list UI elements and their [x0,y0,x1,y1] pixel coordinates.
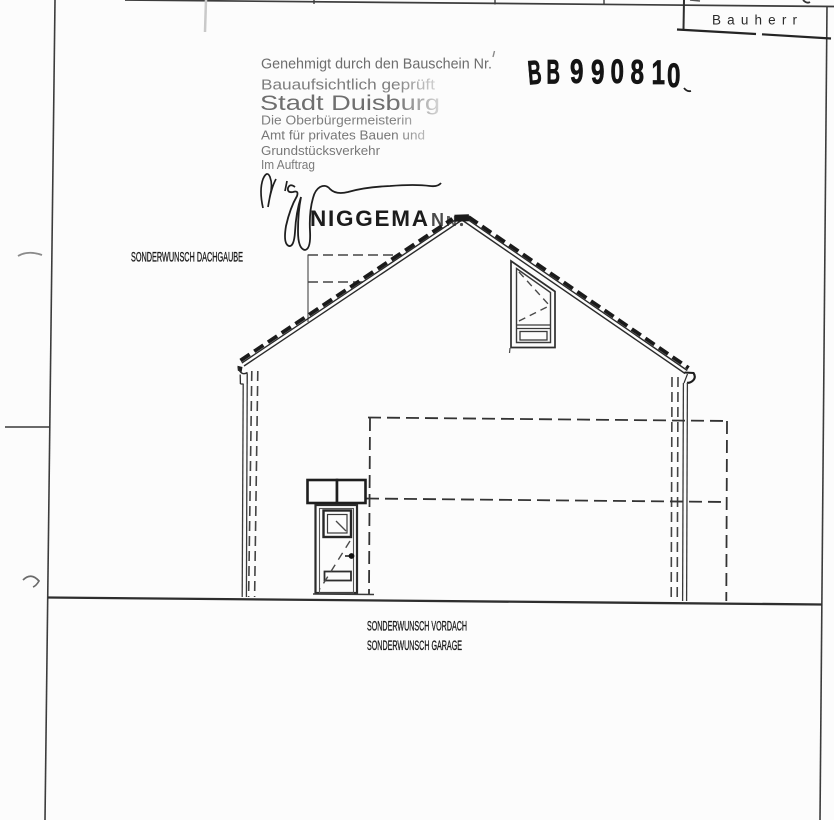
svg-text:SONDERWUNSCH DACHGAUBE: SONDERWUNSCH DACHGAUBE [131,250,243,265]
svg-text:Grundstücksverkehr: Grundstücksverkehr [261,143,381,158]
svg-text:0: 0 [611,53,625,91]
svg-text:SONDERWUNSCH GARAGE: SONDERWUNSCH GARAGE [367,638,462,653]
svg-text:B: B [547,54,561,92]
svg-text:Im Auftrag: Im Auftrag [261,158,315,172]
svg-text:9: 9 [591,54,605,92]
svg-text:Genehmigt durch den Bauschein: Genehmigt durch den Bauschein Nr. [261,56,492,73]
svg-text:B: B [526,54,543,93]
svg-text:1: 1 [652,54,666,92]
svg-text:0: 0 [667,57,681,95]
svg-text:SONDERWUNSCH VORDACH: SONDERWUNSCH VORDACH [367,619,467,634]
svg-text:9: 9 [570,53,584,91]
svg-text:Bauherr: Bauherr [712,13,798,28]
svg-text:8: 8 [631,54,645,92]
svg-text:Die Oberbürgermeisterin: Die Oberbürgermeisterin [261,113,412,128]
svg-text:NIGGEMA: NIGGEMA [310,206,428,231]
